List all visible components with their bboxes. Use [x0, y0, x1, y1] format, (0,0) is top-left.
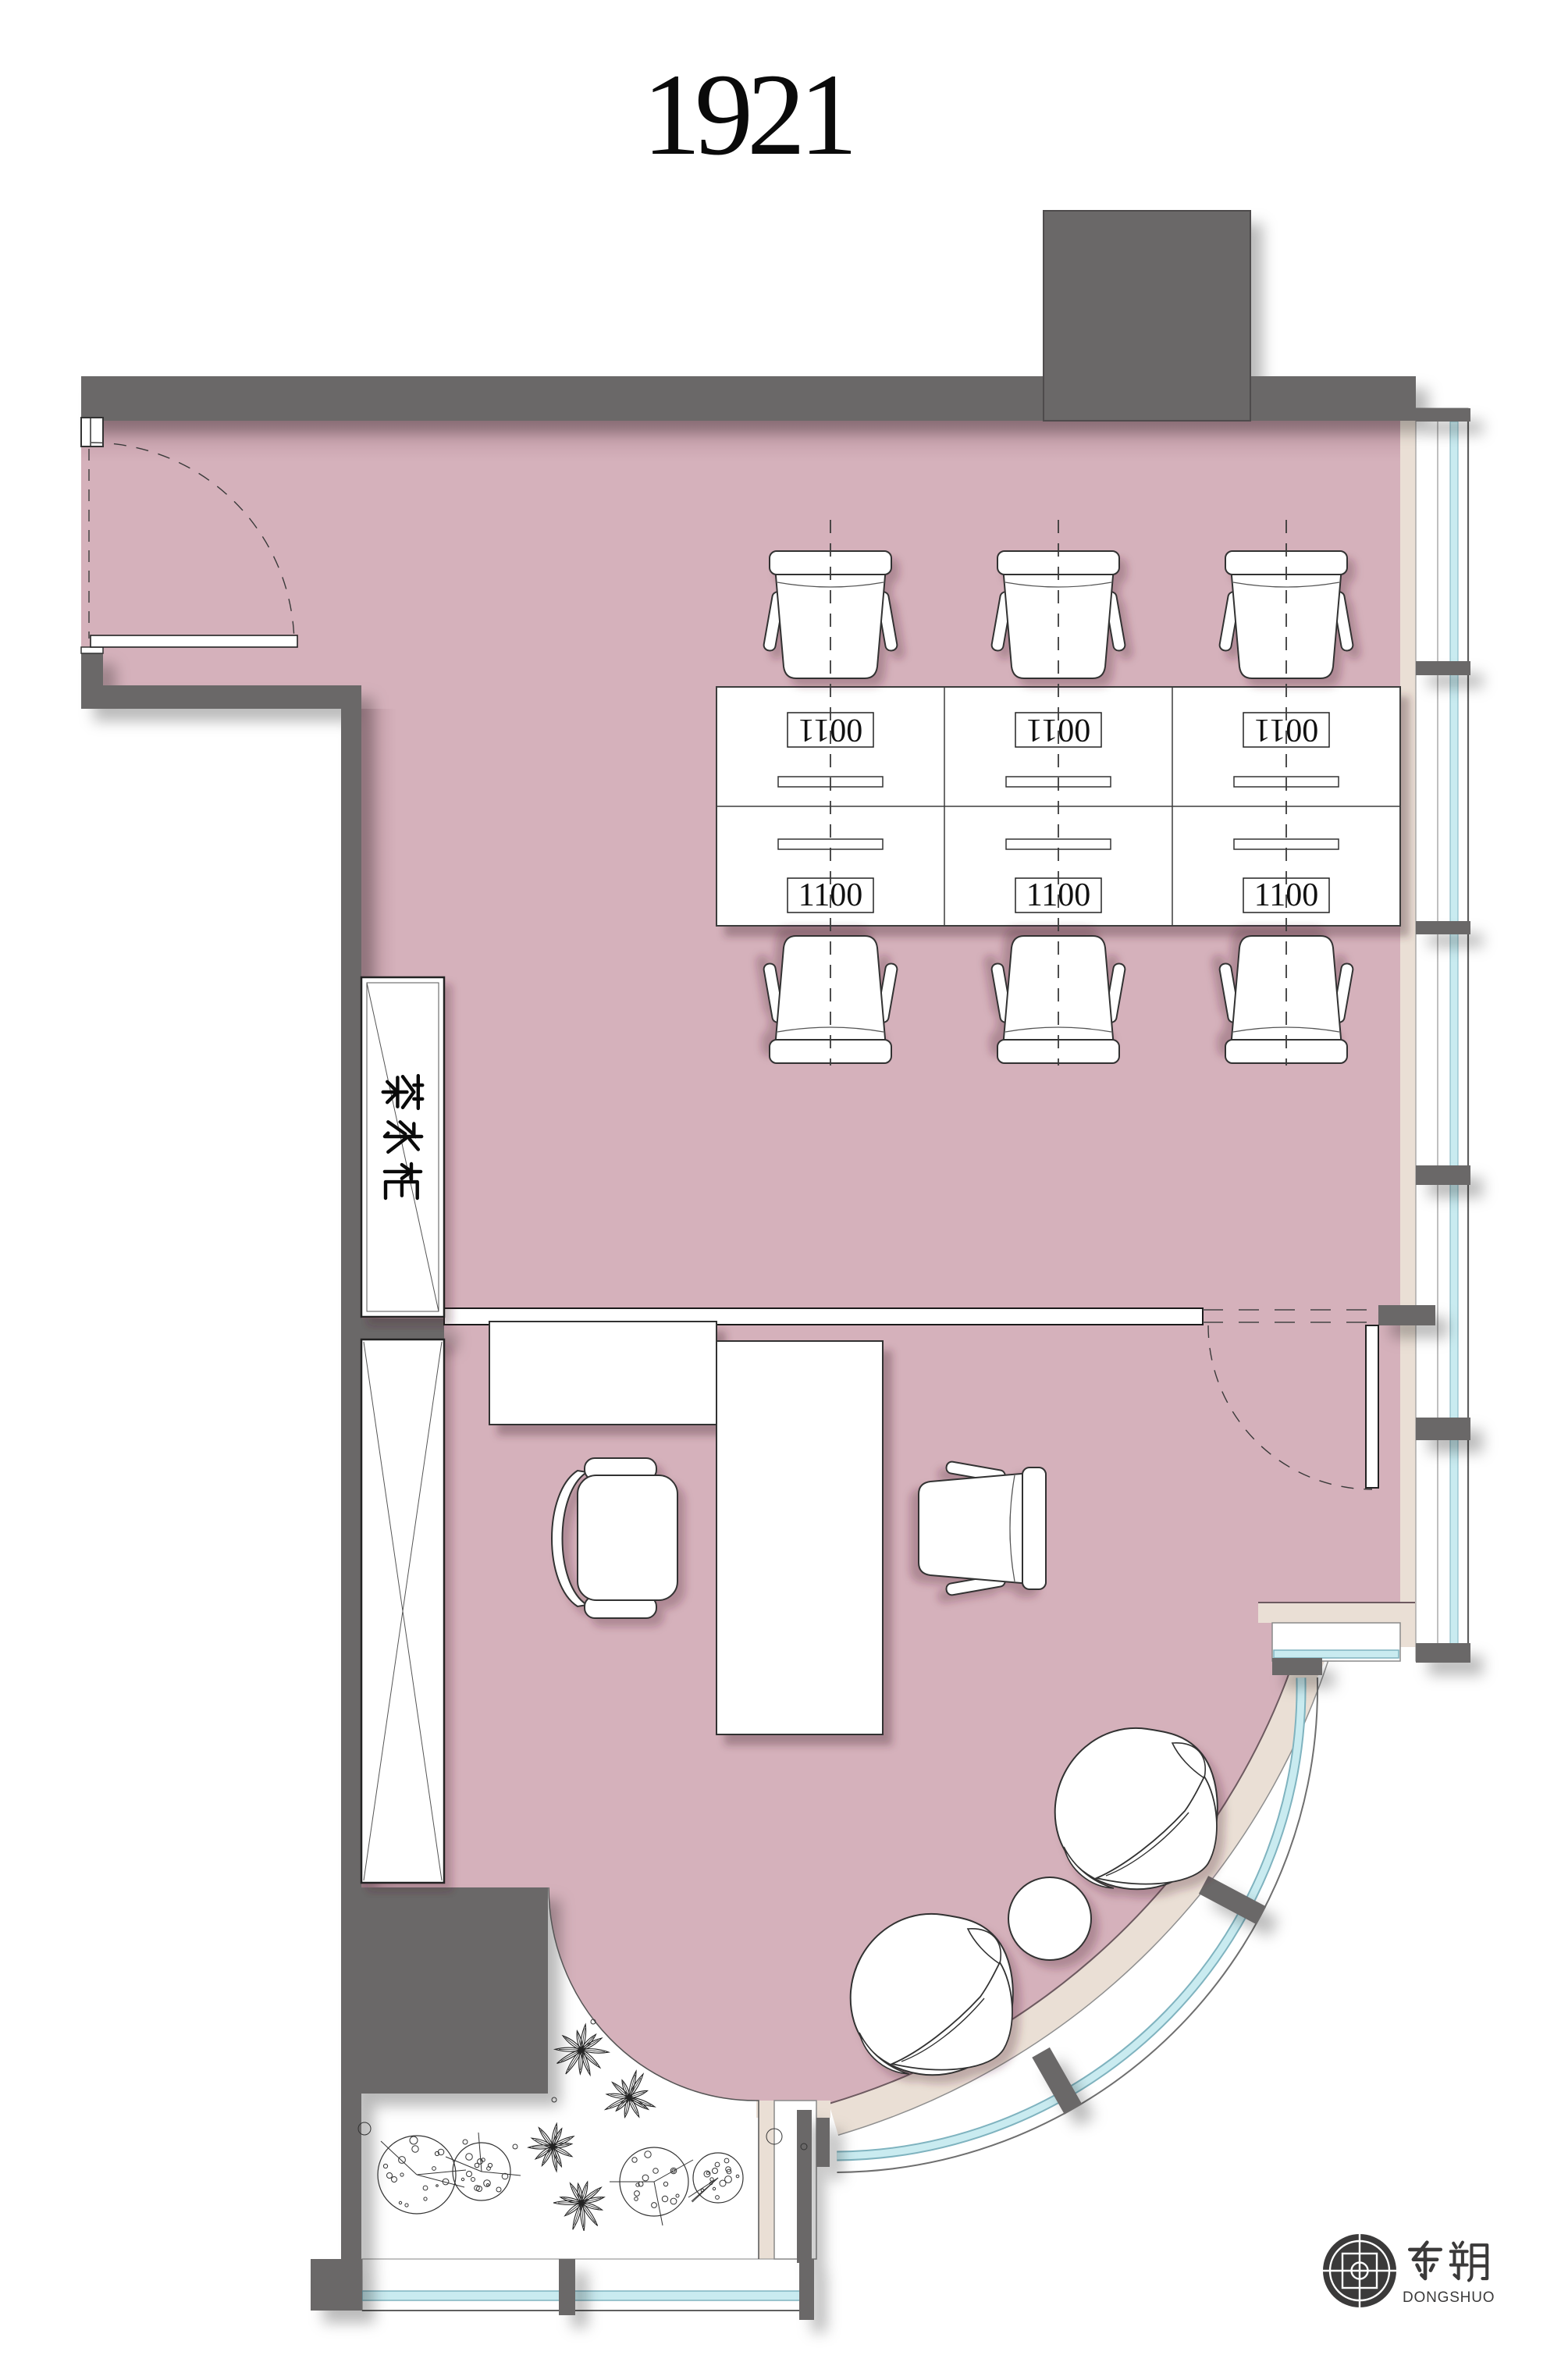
svg-text:DONGSHUO: DONGSHUO — [1403, 2289, 1495, 2306]
svg-text:1921: 1921 — [642, 50, 852, 180]
